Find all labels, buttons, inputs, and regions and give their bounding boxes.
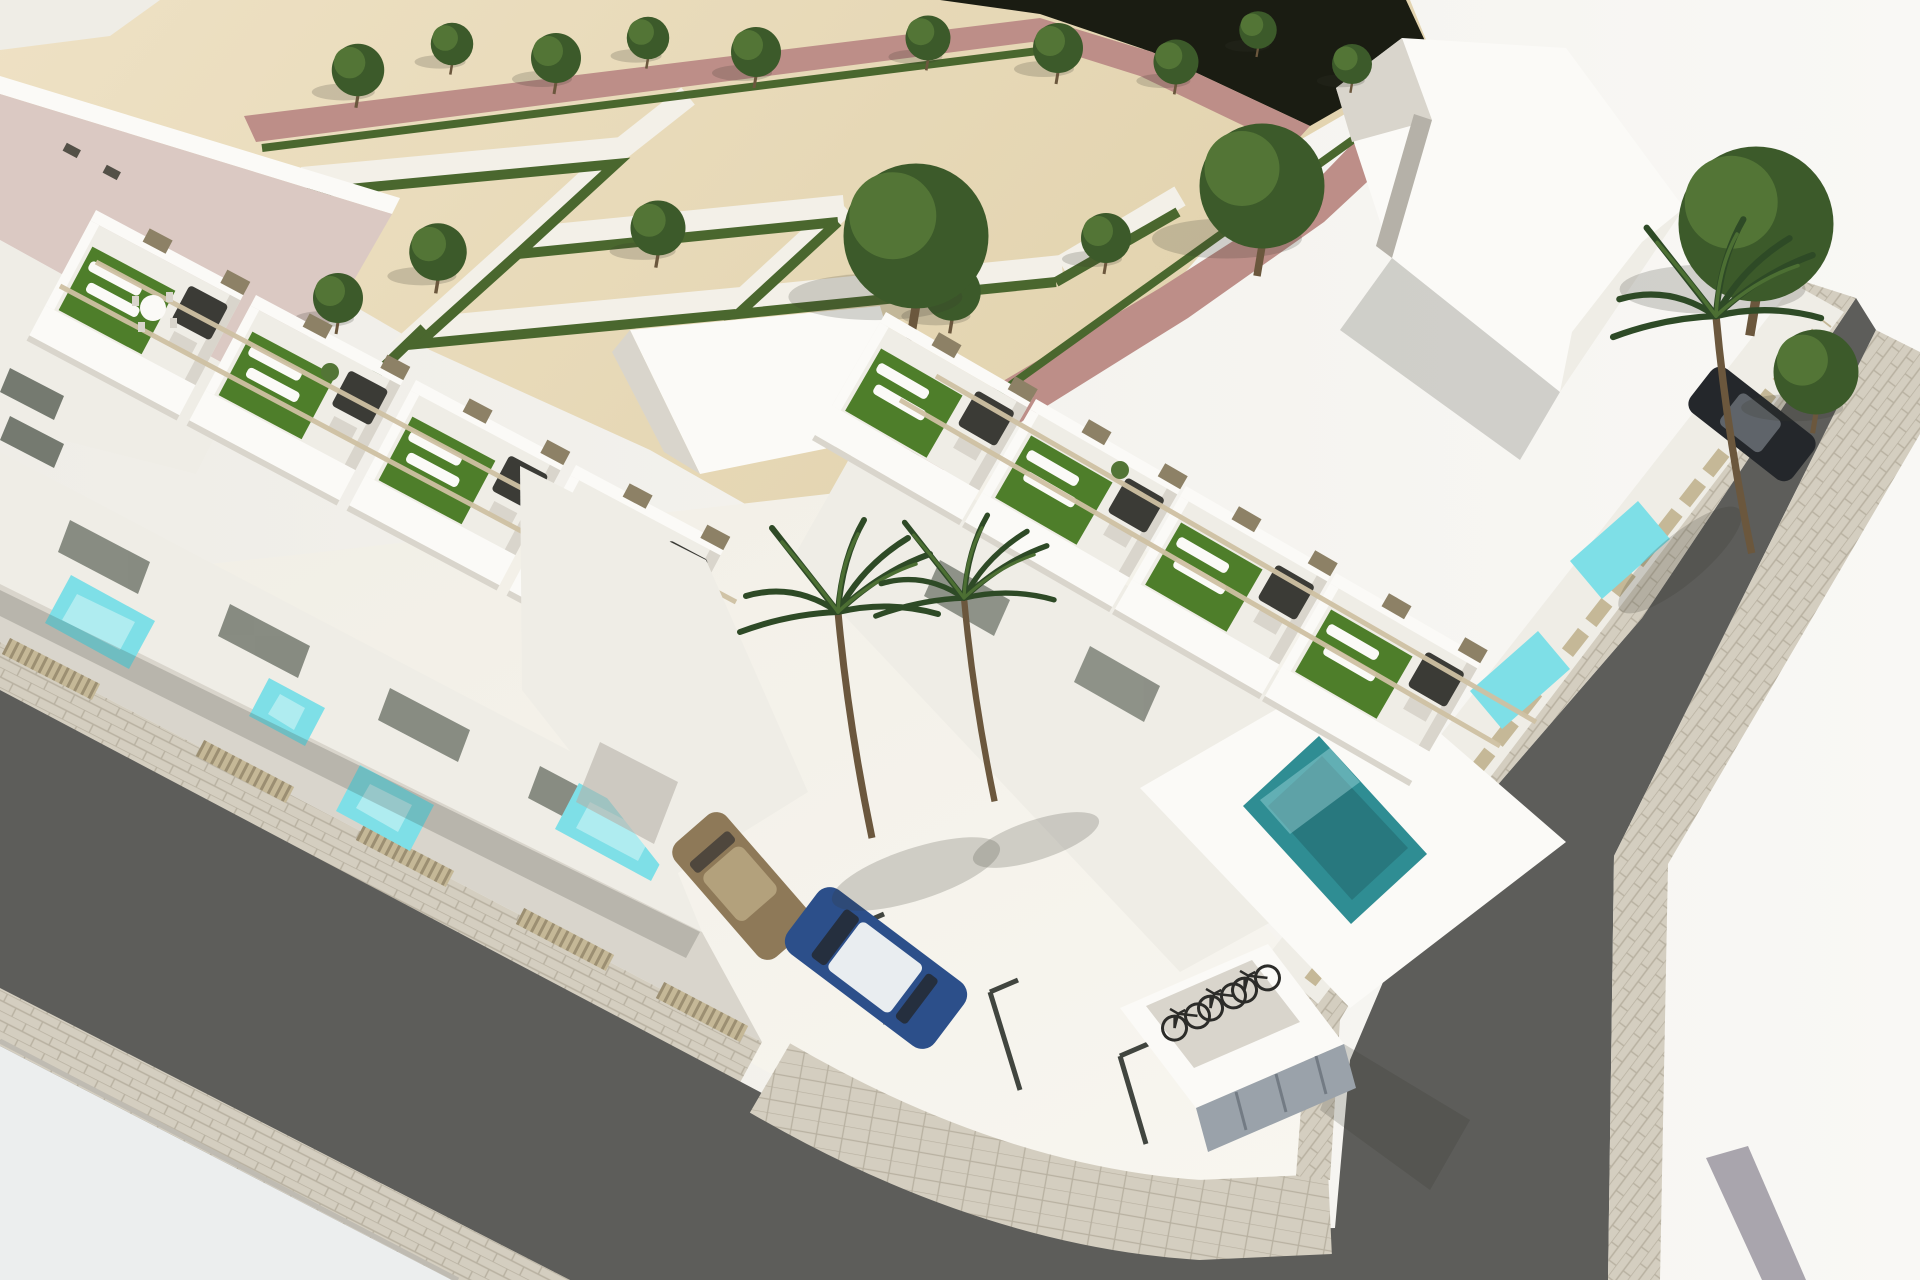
dining-chair: [166, 292, 173, 302]
dining-chair: [170, 318, 177, 328]
dining-table: [140, 295, 166, 321]
architectural-render-canvas: [0, 0, 1920, 1280]
dining-chair: [138, 322, 145, 332]
terrace-plant: [1111, 461, 1129, 479]
terrace-plant: [321, 363, 339, 381]
dining-chair: [132, 296, 139, 306]
